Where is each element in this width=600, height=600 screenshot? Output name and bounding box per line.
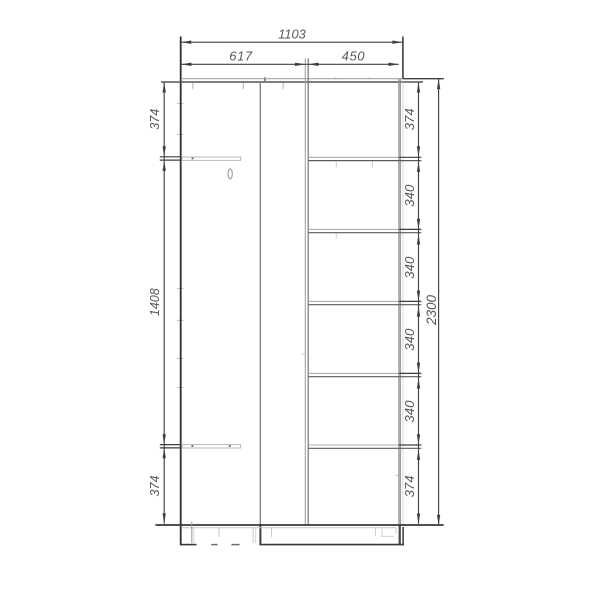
svg-text:340: 340 [402,400,417,423]
svg-text:2300: 2300 [424,295,439,326]
svg-text:374: 374 [148,475,162,496]
svg-text:340: 340 [402,328,417,351]
svg-text:450: 450 [342,49,366,64]
svg-text:374: 374 [402,108,417,130]
svg-text:374: 374 [402,475,417,497]
svg-text:340: 340 [402,256,417,279]
svg-text:1103: 1103 [278,27,306,42]
svg-text:374: 374 [148,109,162,130]
svg-text:1408: 1408 [148,288,162,316]
svg-text:617: 617 [229,49,253,64]
svg-text:340: 340 [402,184,417,207]
